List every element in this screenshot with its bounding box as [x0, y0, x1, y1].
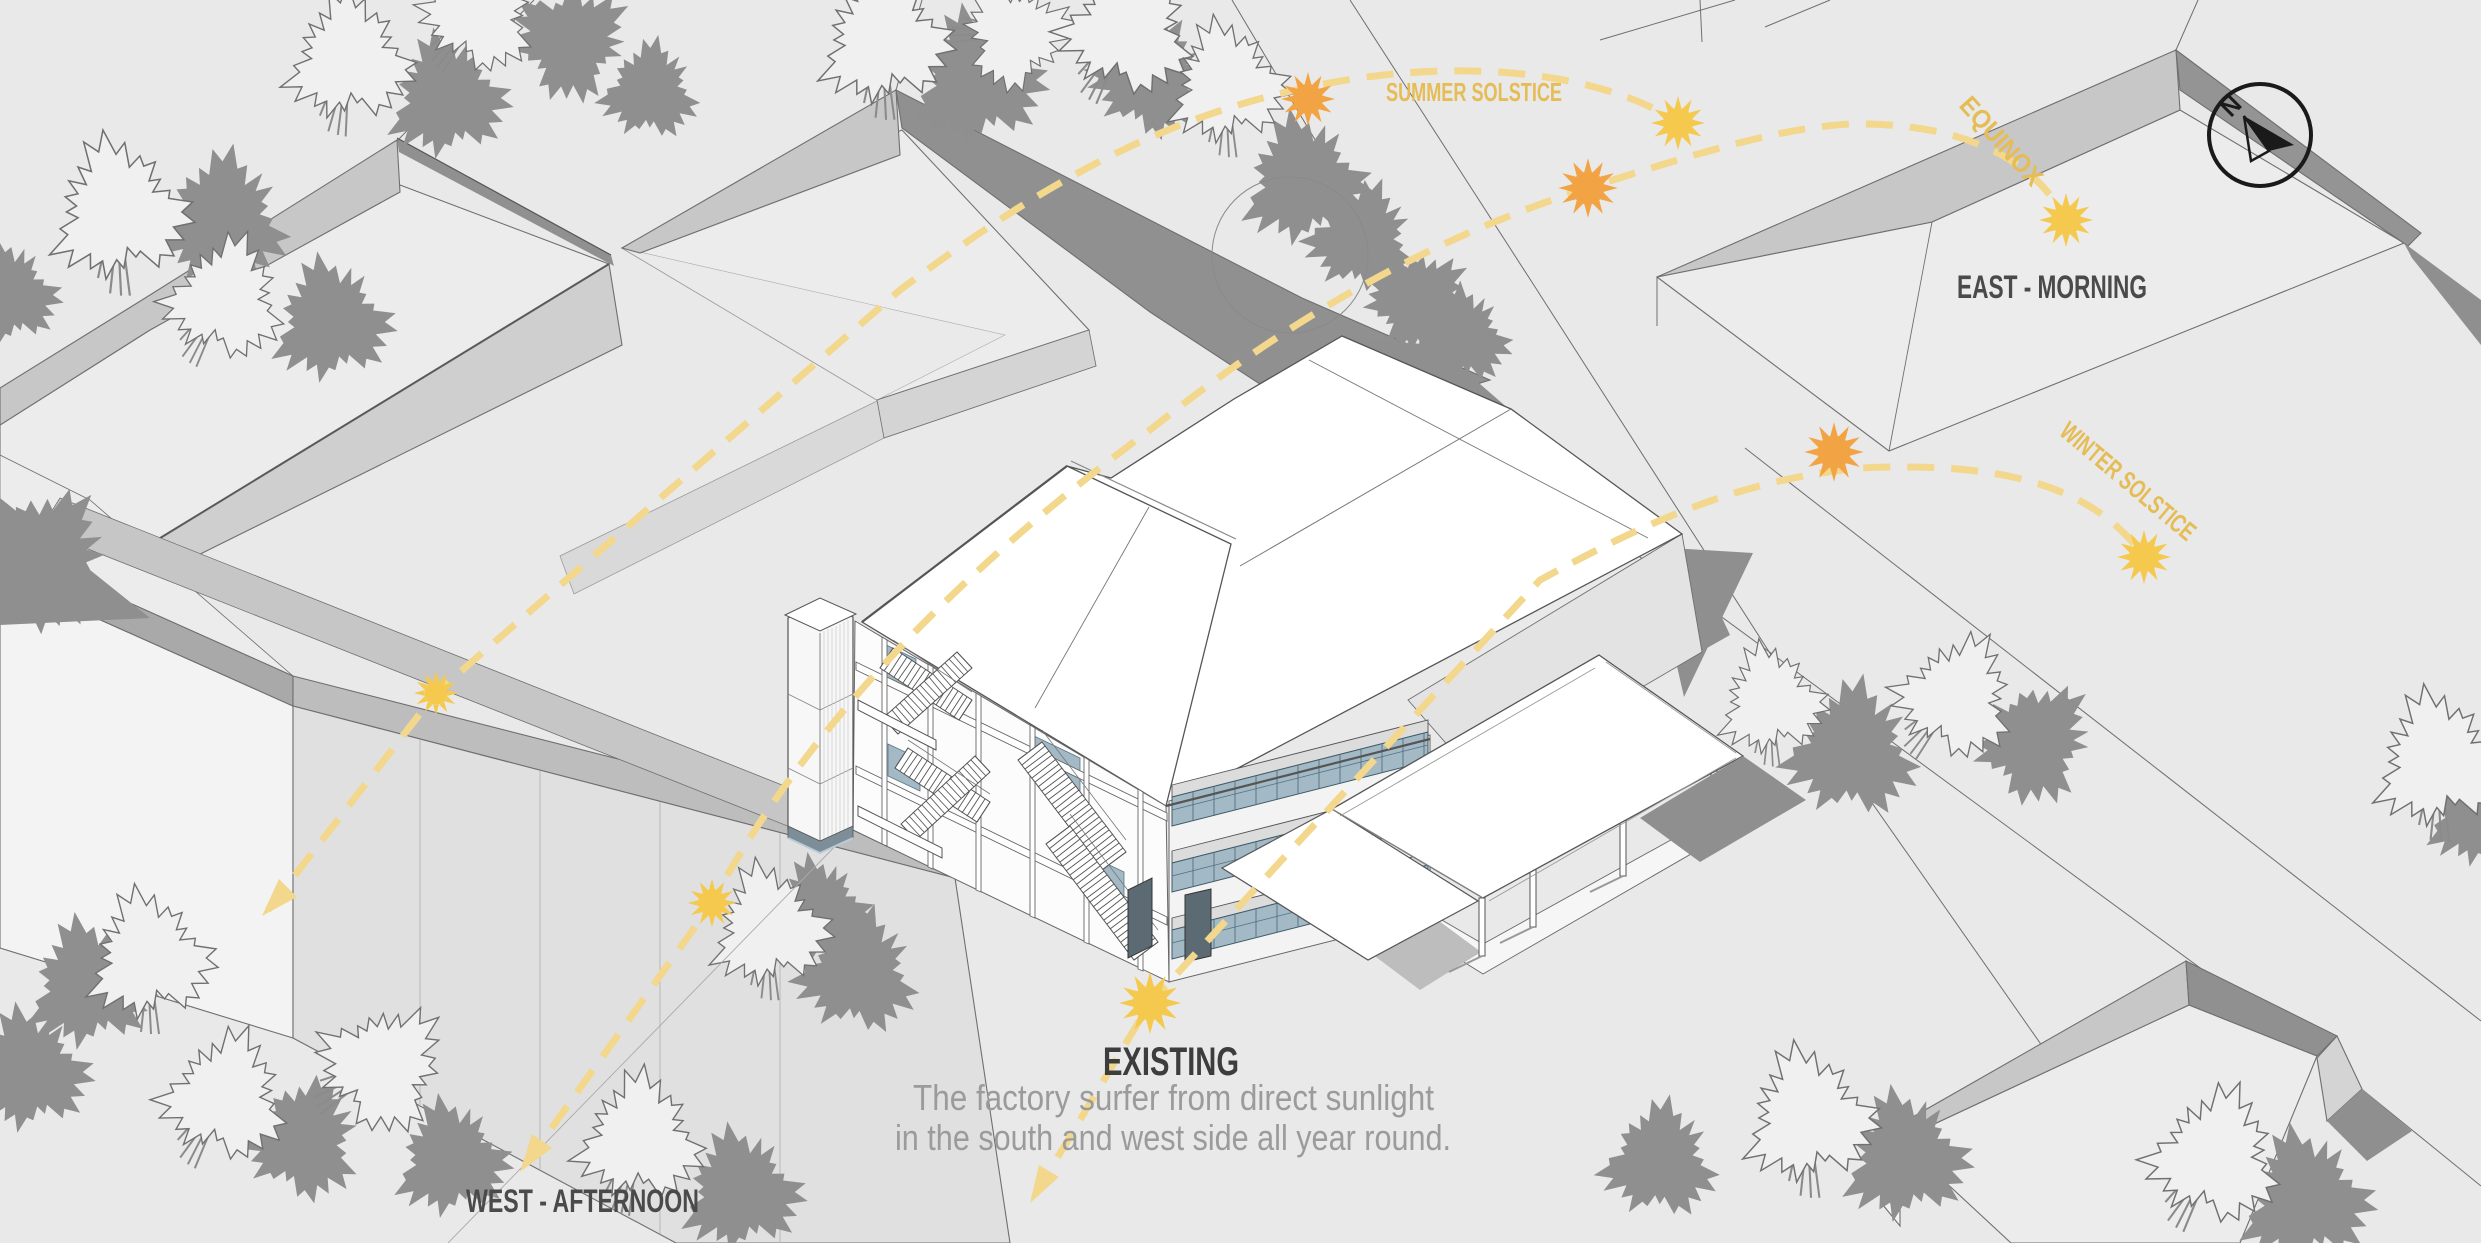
svg-text:The factory surfer from direct: The factory surfer from direct sunlight — [913, 1077, 1434, 1118]
svg-text:SUMMER SOLSTICE: SUMMER SOLSTICE — [1386, 77, 1562, 107]
svg-text:in the south and west side all: in the south and west side all year roun… — [895, 1117, 1451, 1158]
svg-text:WEST - AFTERNOON: WEST - AFTERNOON — [466, 1183, 699, 1219]
svg-text:EAST - MORNING: EAST - MORNING — [1957, 269, 2147, 305]
